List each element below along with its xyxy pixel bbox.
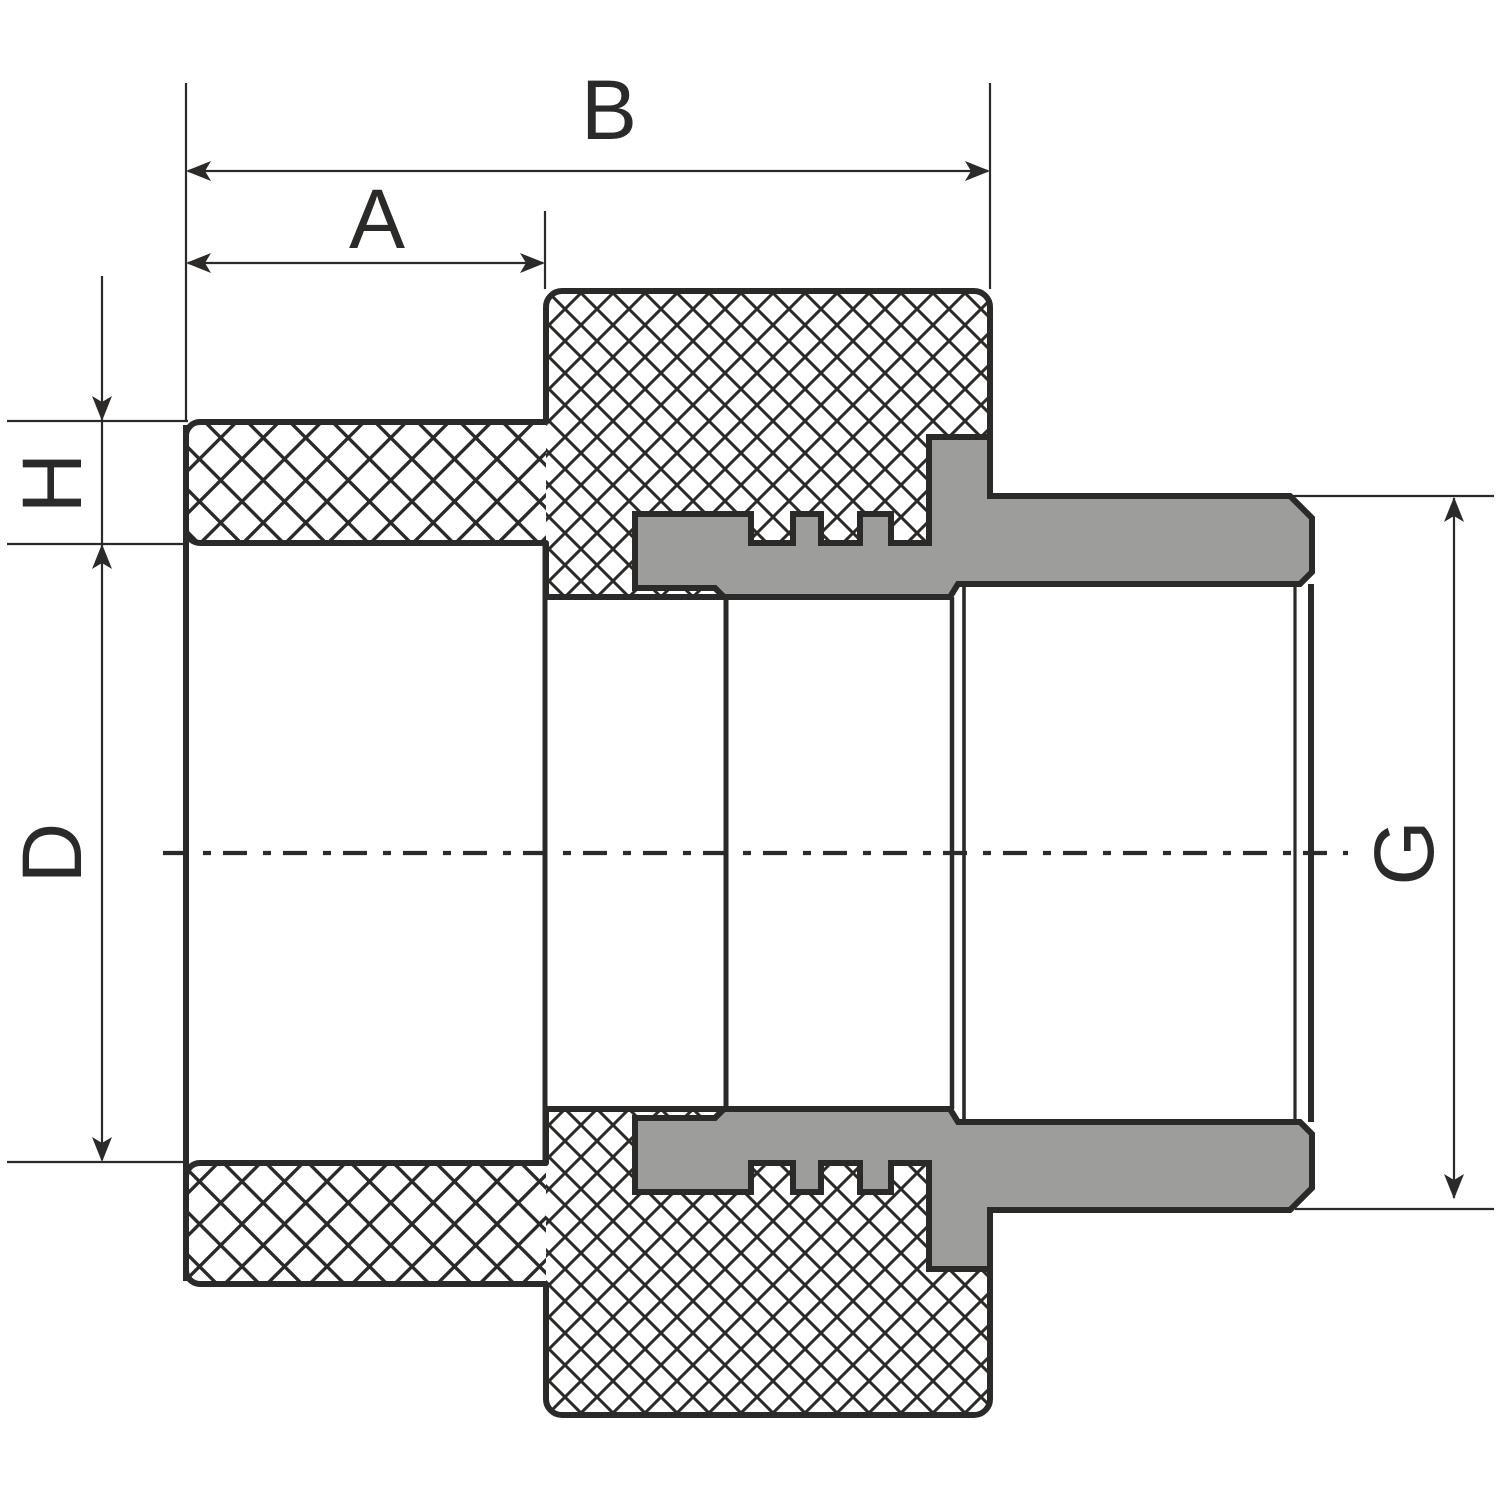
svg-text:D: D (5, 823, 99, 884)
svg-text:H: H (5, 453, 99, 514)
svg-text:A: A (349, 172, 405, 266)
svg-text:B: B (581, 63, 637, 157)
svg-text:G: G (1357, 820, 1451, 885)
